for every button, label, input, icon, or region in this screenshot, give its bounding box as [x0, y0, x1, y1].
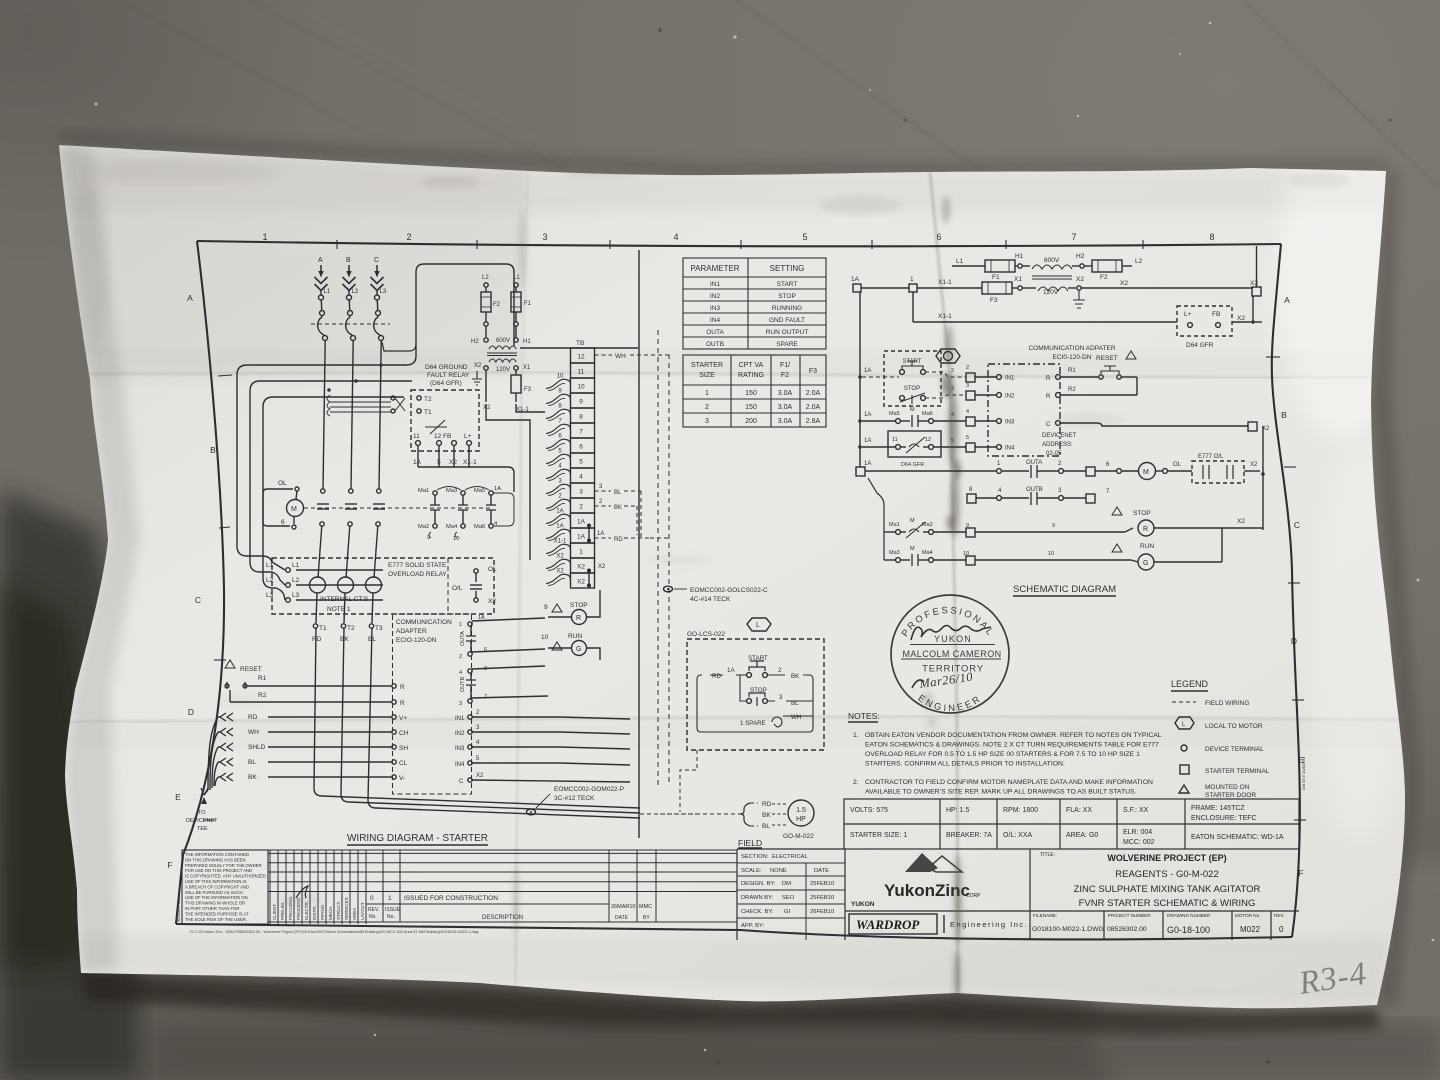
svg-text:3: 3 [705, 418, 709, 425]
svg-text:EATON SCHEMATIC: WD-1A: EATON SCHEMATIC: WD-1A [1191, 834, 1284, 841]
svg-text:WILL BE PURSUED AS SUCH.: WILL BE PURSUED AS SUCH. [185, 890, 244, 895]
svg-text:OL: OL [488, 566, 497, 573]
svg-text:ELR: 004: ELR: 004 [1123, 829, 1152, 836]
svg-text:G: G [1143, 560, 1148, 567]
svg-text:R: R [400, 684, 405, 691]
svg-text:IN2: IN2 [455, 731, 465, 737]
svg-text:8: 8 [579, 414, 583, 421]
svg-text:IN3: IN3 [710, 305, 721, 312]
svg-text:A BREACH OF COPYRIGHT AND: A BREACH OF COPYRIGHT AND [185, 884, 249, 889]
svg-text:OBTAIN EATON VENDOR DOCUMENTAT: OBTAIN EATON VENDOR DOCUMENTATION FROM O… [865, 732, 1162, 739]
svg-text:2.8A: 2.8A [806, 418, 821, 425]
svg-text:10: 10 [1048, 551, 1054, 557]
svg-text:R: R [1046, 376, 1051, 382]
svg-text:25FEB10: 25FEB10 [810, 881, 834, 887]
svg-text:A: A [187, 293, 193, 303]
svg-text:SECTION:: SECTION: [741, 854, 769, 860]
svg-text:M: M [910, 407, 915, 413]
svg-text:PROCESS: PROCESS [296, 898, 301, 920]
svg-text:1A: 1A [494, 486, 501, 492]
svg-text:D64 GFR: D64 GFR [901, 462, 924, 468]
svg-text:12: 12 [925, 437, 931, 443]
svg-text:SCHEMATIC DIAGRAM: SCHEMATIC DIAGRAM [1013, 584, 1116, 595]
svg-text:L: L [756, 622, 760, 629]
svg-text:CH: CH [399, 730, 409, 737]
svg-text:X2: X2 [1237, 518, 1245, 525]
svg-text:G: G [576, 646, 581, 653]
svg-text:C: C [195, 595, 201, 605]
svg-text:3: 3 [579, 489, 583, 496]
svg-text:MOUNTED ON: MOUNTED ON [1205, 784, 1250, 791]
svg-text:D: D [188, 707, 194, 717]
svg-text:THIS DRAWING IN WHOLE OR: THIS DRAWING IN WHOLE OR [185, 901, 245, 906]
svg-text:3C-#12 TECK: 3C-#12 TECK [554, 795, 595, 802]
svg-text:B: B [346, 257, 351, 264]
svg-text:IN4: IN4 [710, 317, 721, 324]
svg-text:600V: 600V [496, 338, 510, 344]
svg-text:7: 7 [1071, 232, 1076, 242]
svg-text:X2: X2 [449, 459, 457, 466]
svg-text:R1: R1 [1068, 368, 1076, 374]
svg-text:OL: OL [278, 480, 287, 487]
svg-text:6: 6 [579, 444, 583, 451]
svg-text:Ma2: Ma2 [418, 524, 429, 530]
svg-text:10: 10 [541, 634, 549, 641]
svg-text:OUTB: OUTB [1026, 487, 1043, 493]
svg-text:GO-LCS-022: GO-LCS-022 [687, 631, 725, 638]
svg-text:ISSUED FOR CONSTRUCTION: ISSUED FOR CONSTRUCTION [404, 895, 498, 902]
svg-text:11: 11 [892, 437, 898, 443]
svg-text:BK: BK [791, 673, 800, 680]
svg-text:F: F [1298, 868, 1303, 878]
svg-text:GO-M-022: GO-M-022 [783, 833, 814, 840]
svg-text:X2: X2 [556, 569, 564, 575]
svg-text:OVERLOAD RELAY: OVERLOAD RELAY [388, 571, 447, 578]
svg-text:IN4: IN4 [455, 762, 465, 768]
svg-text:F1: F1 [992, 274, 1000, 281]
svg-text:2.0A: 2.0A [806, 404, 821, 411]
svg-text:L+: L+ [1184, 311, 1192, 318]
svg-text:FRAME: 145TCZ: FRAME: 145TCZ [1191, 805, 1245, 812]
svg-text:HP: 1.5: HP: 1.5 [946, 807, 969, 814]
svg-text:1A: 1A [556, 524, 563, 530]
svg-text:X2: X2 [556, 554, 564, 560]
svg-text:1A: 1A [727, 667, 735, 674]
svg-text:600V: 600V [1044, 257, 1060, 264]
svg-text:C: C [459, 779, 464, 785]
svg-text:LOCAL TO MOTOR: LOCAL TO MOTOR [1205, 723, 1263, 730]
svg-text:MALCOLM CAMERON: MALCOLM CAMERON [902, 649, 1001, 659]
svg-text:Ma3: Ma3 [889, 550, 900, 556]
svg-text:BK: BK [248, 774, 257, 781]
svg-text:ADAPTER: ADAPTER [396, 628, 427, 635]
svg-text:M: M [910, 546, 915, 552]
svg-text:CORP: CORP [966, 893, 981, 899]
svg-text:IN2: IN2 [710, 293, 721, 300]
svg-text:SERVICES: SERVICES [344, 897, 349, 920]
svg-text:1: 1 [388, 895, 392, 902]
svg-text:RESET: RESET [240, 666, 262, 673]
svg-text:10: 10 [557, 374, 564, 380]
svg-text:3.0A: 3.0A [778, 404, 793, 411]
svg-text:Ma4: Ma4 [446, 524, 458, 530]
svg-text:1 SPARE: 1 SPARE [740, 720, 766, 727]
svg-text:M: M [291, 506, 297, 513]
svg-text:EATON SCHEMATICS & DRAWINGS. N: EATON SCHEMATICS & DRAWINGS. NOTE 2 X CT… [865, 742, 1159, 749]
svg-text:ELECTR.: ELECTR. [304, 901, 309, 920]
svg-text:RD: RD [248, 714, 258, 721]
svg-text:NOTE 1: NOTE 1 [327, 606, 351, 613]
svg-text:S.F.: XX: S.F.: XX [1123, 807, 1149, 814]
svg-text:4: 4 [673, 232, 678, 242]
svg-text:RESET: RESET [1096, 355, 1118, 362]
svg-text:Ma3: Ma3 [446, 488, 457, 494]
svg-text:D64 GROUND: D64 GROUND [425, 364, 468, 371]
svg-text:REAGENTS - G0-M-022: REAGENTS - G0-M-022 [1115, 869, 1218, 880]
svg-text:L1: L1 [292, 562, 300, 569]
svg-text:CONTRACTOR TO FIELD CONFIRM MO: CONTRACTOR TO FIELD CONFIRM MOTOR NAMEPL… [865, 779, 1153, 786]
svg-text:X2: X2 [474, 363, 482, 369]
svg-text:5: 5 [966, 435, 969, 441]
svg-text:STARTER TERMINAL: STARTER TERMINAL [1205, 768, 1270, 775]
svg-text:EOMCC002-GOLCS022-C: EOMCC002-GOLCS022-C [690, 587, 768, 594]
svg-text:R2: R2 [1068, 387, 1076, 393]
svg-text:E777 O/L: E777 O/L [1198, 454, 1224, 460]
svg-text:4: 4 [459, 670, 462, 676]
svg-text:PIPING: PIPING [320, 904, 325, 920]
svg-text:X2: X2 [483, 405, 491, 411]
svg-text:BREAKER: 7A: BREAKER: 7A [946, 832, 992, 839]
svg-text:Ma6: Ma6 [922, 411, 933, 417]
svg-text:PROJ.ENG.: PROJ.ENG. [288, 896, 293, 920]
svg-text:PROJECT NUMBER: PROJECT NUMBER [1108, 913, 1151, 918]
svg-text:TITLE:: TITLE: [1040, 852, 1055, 858]
svg-text:C: C [374, 257, 379, 264]
svg-text:NOTES:: NOTES: [848, 711, 880, 721]
svg-text:M: M [1143, 469, 1149, 476]
svg-text:SIZE: SIZE [699, 372, 715, 379]
svg-text:9: 9 [427, 535, 430, 541]
svg-text:MCC: 002: MCC: 002 [1123, 839, 1155, 846]
svg-text:No.: No. [387, 914, 395, 920]
svg-text:120V: 120V [1043, 289, 1059, 296]
svg-text:5: 5 [579, 459, 583, 466]
svg-text:G018100-M022-1.DWG: G018100-M022-1.DWG [1032, 926, 1104, 933]
svg-text:R: R [1143, 526, 1148, 533]
svg-text:G0-18-100: G0-18-100 [1167, 925, 1210, 935]
svg-text:AM 05.9 10/82/RM: AM 05.9 10/82/RM [1301, 757, 1306, 790]
svg-text:YUKON: YUKON [934, 634, 972, 644]
svg-text:ENCLOSURE: TEFC: ENCLOSURE: TEFC [1191, 815, 1257, 822]
svg-text:STOP: STOP [778, 293, 796, 300]
svg-text:OVERLOAD RELAY FOR 0.5 TO 1.5: OVERLOAD RELAY FOR 0.5 TO 1.5 HP SIZE 00… [865, 751, 1140, 758]
svg-text:R: R [400, 700, 405, 707]
svg-text:SPARE: SPARE [776, 341, 798, 348]
svg-text:IN3: IN3 [1005, 420, 1015, 426]
svg-text:X2: X2 [476, 773, 484, 779]
svg-text:No.: No. [369, 914, 377, 920]
svg-text:RD: RD [312, 636, 322, 643]
svg-text:5: 5 [802, 232, 807, 242]
svg-text:200: 200 [745, 418, 757, 425]
svg-text:0: 0 [370, 895, 374, 902]
svg-text:C: C [1294, 520, 1300, 530]
svg-text:B: B [210, 445, 216, 455]
svg-text:Engineering Inc.: Engineering Inc. [950, 920, 1028, 929]
svg-text:2: 2 [579, 504, 583, 511]
svg-text:FB: FB [443, 433, 451, 440]
svg-text:X2: X2 [488, 598, 496, 605]
svg-text:ADDRESS:: ADDRESS: [1042, 442, 1073, 448]
svg-text:FIELD WIRING: FIELD WIRING [1205, 700, 1249, 707]
svg-text:FILENAME:: FILENAME: [1033, 913, 1057, 918]
svg-text:1A: 1A [864, 438, 871, 444]
svg-text:L+: L+ [464, 433, 472, 440]
svg-text:COMMUNICATION: COMMUNICATION [396, 619, 452, 626]
svg-text:150: 150 [745, 390, 757, 397]
svg-text:1.5: 1.5 [796, 807, 806, 814]
svg-text:1A: 1A [864, 461, 871, 467]
svg-text:ISSUE: ISSUE [385, 907, 401, 913]
svg-text:2.0A: 2.0A [806, 390, 821, 397]
svg-text:IS COPYRIGHTED. ANY UNAUTHORIZ: IS COPYRIGHTED. ANY UNAUTHORIZED [185, 874, 266, 879]
svg-text:ON THIS DRAWING HAS BEEN: ON THIS DRAWING HAS BEEN [185, 857, 246, 862]
svg-text:YUKON: YUKON [851, 901, 875, 908]
svg-text:1A: 1A [864, 412, 871, 418]
svg-text:Ma1: Ma1 [889, 522, 900, 528]
svg-text:3.0A: 3.0A [778, 390, 793, 397]
svg-text:ELECTRICAL: ELECTRICAL [772, 854, 809, 860]
svg-text:R1: R1 [258, 675, 267, 682]
svg-text:SHLD: SHLD [248, 744, 266, 751]
svg-text:(D64 GFR): (D64 GFR) [430, 380, 462, 387]
svg-text:TB: TB [576, 340, 584, 347]
svg-text:STARTERS. CONFIRM ALL DETAILS: STARTERS. CONFIRM ALL DETAILS PRIOR TO I… [865, 761, 1065, 768]
svg-text:OUTA: OUTA [1026, 460, 1042, 466]
svg-text:WH: WH [791, 714, 801, 721]
svg-text:X1-1: X1-1 [463, 459, 477, 466]
svg-text:X2: X2 [1237, 315, 1245, 322]
svg-text:AVAILABLE TO OWNER’S SITE REP.: AVAILABLE TO OWNER’S SITE REP. MARK UP A… [865, 789, 1137, 796]
svg-text:F2: F2 [493, 302, 501, 308]
svg-text:INTERNAL CT’S: INTERNAL CT’S [320, 596, 369, 603]
svg-text:X2: X2 [598, 564, 606, 570]
svg-text:F1: F1 [524, 301, 532, 307]
svg-text:DATE: DATE [814, 868, 829, 874]
svg-text:FB: FB [1212, 311, 1220, 318]
svg-text:BL: BL [614, 490, 622, 496]
svg-text:COMMUNICATION ADPATER: COMMUNICATION ADPATER [1028, 345, 1115, 352]
svg-text:Ma5: Ma5 [889, 411, 900, 417]
svg-text:2: 2 [705, 404, 709, 411]
svg-text:STRUCT.: STRUCT. [336, 901, 341, 920]
svg-text:E: E [175, 792, 181, 802]
svg-text:X2: X2 [1120, 280, 1128, 287]
svg-text:DM: DM [782, 881, 791, 887]
svg-text:THE SOLE RISK OF THE USER.: THE SOLE RISK OF THE USER. [185, 917, 247, 922]
svg-text:1A: 1A [577, 519, 586, 526]
svg-text:L1: L1 [513, 275, 520, 281]
svg-text:REV.: REV. [368, 907, 379, 913]
svg-text:X1-1: X1-1 [938, 279, 952, 286]
svg-text:USE OF THIS INFORMATION IS: USE OF THIS INFORMATION IS [185, 879, 247, 884]
svg-text:1: 1 [579, 549, 583, 556]
svg-text:9: 9 [544, 604, 548, 611]
svg-text:C: C [1046, 422, 1051, 428]
svg-text:M022: M022 [1240, 925, 1261, 934]
svg-text:E777 SOLID STATE: E777 SOLID STATE [388, 562, 447, 569]
svg-text:INSTR.: INSTR. [312, 905, 317, 920]
svg-text:X2: X2 [577, 579, 585, 586]
svg-text:B: B [1281, 410, 1287, 420]
svg-text:F3: F3 [990, 297, 998, 304]
svg-text:X1: X1 [523, 365, 531, 371]
svg-text:T1: T1 [424, 409, 432, 416]
svg-text:3.0A: 3.0A [778, 418, 793, 425]
svg-text:FLA: XX: FLA: XX [1066, 807, 1092, 814]
svg-text:H2: H2 [471, 339, 479, 345]
svg-text:DRAWN BY:: DRAWN BY: [741, 895, 774, 901]
svg-text:IN PART OTHER THAN FOR: IN PART OTHER THAN FOR [185, 906, 239, 911]
svg-text:1.: 1. [853, 732, 859, 739]
svg-text:FIELD: FIELD [738, 838, 762, 848]
svg-text:DEVICENET: DEVICENET [186, 818, 218, 824]
svg-text:X2: X2 [1076, 276, 1084, 283]
svg-text:USE OF THE INFORMATION ON: USE OF THE INFORMATION ON [185, 895, 248, 900]
svg-text:AREA: AREA [352, 908, 357, 920]
svg-text:THE INFORMATION CONTAINED: THE INFORMATION CONTAINED [185, 852, 249, 857]
svg-text:11: 11 [578, 369, 585, 376]
svg-text:BK: BK [614, 505, 622, 511]
svg-text:D64 GFR: D64 GFR [1186, 342, 1214, 349]
svg-text:CLIENT: CLIENT [272, 904, 277, 920]
svg-text:3: 3 [542, 232, 547, 242]
svg-text:PARAMETER: PARAMETER [690, 264, 739, 273]
svg-text:SCALE:: SCALE: [741, 868, 762, 874]
svg-text:L3: L3 [380, 289, 387, 295]
svg-text:T2: T2 [424, 396, 432, 403]
svg-text:1A: 1A [851, 276, 860, 283]
svg-text:3: 3 [459, 701, 462, 707]
svg-text:IN1: IN1 [1005, 376, 1015, 382]
svg-text:120V: 120V [496, 367, 510, 373]
svg-text:F2: F2 [781, 372, 789, 379]
svg-text:DESIGN. BY:: DESIGN. BY: [741, 881, 776, 887]
svg-text:CPT VA: CPT VA [739, 362, 764, 369]
svg-text:1: 1 [910, 276, 914, 283]
svg-text:12: 12 [577, 354, 585, 361]
svg-text:10: 10 [577, 384, 585, 391]
svg-text:IN3: IN3 [455, 746, 465, 752]
svg-text:1: 1 [262, 232, 267, 242]
svg-text:L1: L1 [956, 258, 964, 265]
svg-text:OUTB: OUTB [706, 341, 724, 348]
svg-text:RUNNING: RUNNING [772, 305, 802, 312]
svg-text:X1-1: X1-1 [938, 313, 952, 320]
svg-text:STARTER SIZE: 1: STARTER SIZE: 1 [850, 832, 907, 839]
svg-text:2: 2 [966, 365, 969, 371]
svg-text:PRELIM.: PRELIM. [280, 902, 285, 920]
svg-text:Ma6: Ma6 [474, 524, 485, 530]
svg-text:H1: H1 [1015, 253, 1024, 260]
svg-text:AREA: G0: AREA: G0 [1066, 832, 1098, 839]
svg-text:WOLVERINE PROJECT (EP): WOLVERINE PROJECT (EP) [1107, 853, 1226, 863]
svg-text:F: F [167, 860, 172, 870]
svg-text:F3: F3 [809, 368, 817, 375]
svg-text:4: 4 [966, 409, 969, 415]
svg-text:9: 9 [579, 399, 583, 406]
svg-text:26FEB10: 26FEB10 [810, 909, 834, 915]
svg-text:8: 8 [1209, 232, 1214, 242]
svg-text:Ma4: Ma4 [922, 550, 933, 556]
svg-text:RATING: RATING [738, 372, 764, 379]
svg-text:BK: BK [340, 636, 349, 643]
svg-text:3: 3 [779, 694, 783, 701]
svg-text:Ma1: Ma1 [418, 488, 429, 494]
svg-text:L1: L1 [324, 289, 331, 295]
svg-text:T3: T3 [375, 625, 383, 632]
svg-text:A: A [1284, 295, 1290, 305]
svg-text:R: R [1046, 394, 1051, 400]
svg-text:T1: T1 [319, 625, 327, 632]
svg-text:RD: RD [762, 801, 772, 808]
svg-text:M: M [910, 518, 915, 524]
svg-text:G:\7-21\Yukon Zinc - 526LP\085: G:\7-21\Yukon Zinc - 526LP\08526302.00 -… [190, 930, 478, 934]
svg-text:STOP: STOP [570, 602, 588, 609]
svg-text:D: D [1291, 636, 1297, 646]
svg-text:SH: SH [399, 745, 408, 752]
svg-text:MOTOR No.: MOTOR No. [1235, 913, 1260, 918]
svg-text:IN4: IN4 [1005, 446, 1015, 452]
svg-text:OUTB: OUTB [460, 676, 466, 692]
svg-text:O/L: XXA: O/L: XXA [1003, 832, 1033, 839]
svg-text:STARTER: STARTER [691, 362, 723, 369]
svg-text:THE INTENDED PURPOSE IS AT: THE INTENDED PURPOSE IS AT [185, 911, 249, 916]
svg-text:CHECK. BY:: CHECK. BY: [741, 909, 774, 915]
svg-text:X1-1: X1-1 [554, 539, 567, 545]
svg-text:TO: TO [198, 810, 206, 816]
svg-text:FAULT RELAY: FAULT RELAY [427, 372, 470, 379]
svg-text:4: 4 [579, 474, 583, 481]
svg-text:GND FAULT: GND FAULT [769, 317, 805, 324]
svg-text:F1/: F1/ [780, 362, 790, 369]
svg-text:2: 2 [459, 654, 462, 660]
svg-text:6: 6 [936, 232, 941, 242]
svg-text:DATE: DATE [615, 915, 629, 921]
svg-text:MMC: MMC [639, 904, 652, 910]
svg-text:25FEB10: 25FEB10 [810, 895, 834, 901]
svg-text:GI: GI [784, 909, 791, 915]
svg-text:RUN OUTPUT: RUN OUTPUT [766, 329, 809, 336]
svg-text:PREPARED SOLELY FOR THE OWNER: PREPARED SOLELY FOR THE OWNER [185, 863, 261, 868]
svg-text:BL: BL [762, 823, 770, 830]
svg-text:7: 7 [579, 429, 583, 436]
svg-text:RUN: RUN [568, 633, 582, 640]
svg-text:FVNR STARTER SCHEMATIC & WIRIN: FVNR STARTER SCHEMATIC & WIRING [1079, 898, 1256, 909]
svg-text:9: 9 [1052, 523, 1055, 529]
svg-text:H1: H1 [523, 339, 531, 345]
svg-text:X1: X1 [1014, 276, 1022, 283]
svg-text:F2: F2 [1100, 274, 1108, 281]
svg-text:IN1: IN1 [455, 716, 465, 722]
svg-text:1A: 1A [864, 368, 871, 374]
svg-text:DRAWING NUMBER: DRAWING NUMBER [1167, 913, 1211, 918]
svg-text:F3: F3 [524, 387, 532, 393]
svg-text:26MAR10: 26MAR10 [611, 904, 635, 910]
svg-text:APP. BY:: APP. BY: [741, 923, 764, 929]
svg-text:02-05: 02-05 [1046, 451, 1062, 457]
svg-text:STOP: STOP [1133, 510, 1151, 517]
